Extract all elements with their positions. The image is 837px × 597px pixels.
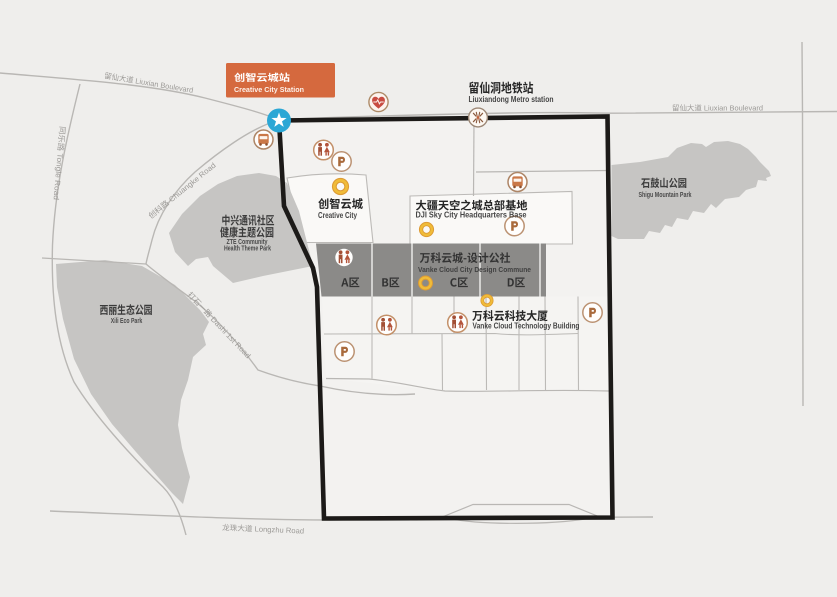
svg-text:C区: C区	[450, 275, 469, 291]
svg-text:DJI Sky City Headquarters Base: DJI Sky City Headquarters Base	[416, 211, 528, 220]
svg-text:Creative City Station: Creative City Station	[234, 85, 304, 94]
svg-text:B区: B区	[381, 275, 400, 291]
svg-text:留仙大道 Liuxian Boulevard: 留仙大道 Liuxian Boulevard	[672, 103, 763, 114]
svg-text:Vanke Cloud City Design Commun: Vanke Cloud City Design Commune	[418, 265, 531, 274]
svg-text:Xili Eco Park: Xili Eco Park	[111, 318, 143, 325]
svg-text:石鼓山公园: 石鼓山公园	[641, 175, 687, 191]
svg-text:西丽生态公园: 西丽生态公园	[100, 302, 153, 318]
svg-text:Shigu Mountain Park: Shigu Mountain Park	[639, 192, 692, 199]
svg-text:D区: D区	[507, 275, 526, 291]
svg-text:Vanke Cloud Technology Buildin: Vanke Cloud Technology Building	[473, 321, 580, 331]
svg-text:A区: A区	[340, 275, 360, 291]
svg-text:Liuxiandong Metro station: Liuxiandong Metro station	[469, 95, 554, 104]
svg-text:万科云城-设计公社: 万科云城-设计公社	[420, 250, 512, 266]
svg-text:创智云城站: 创智云城站	[234, 70, 290, 84]
svg-text:留仙洞地铁站: 留仙洞地铁站	[469, 78, 534, 97]
svg-text:Creative City: Creative City	[318, 210, 357, 220]
svg-text:Health Theme Park: Health Theme Park	[224, 246, 271, 253]
